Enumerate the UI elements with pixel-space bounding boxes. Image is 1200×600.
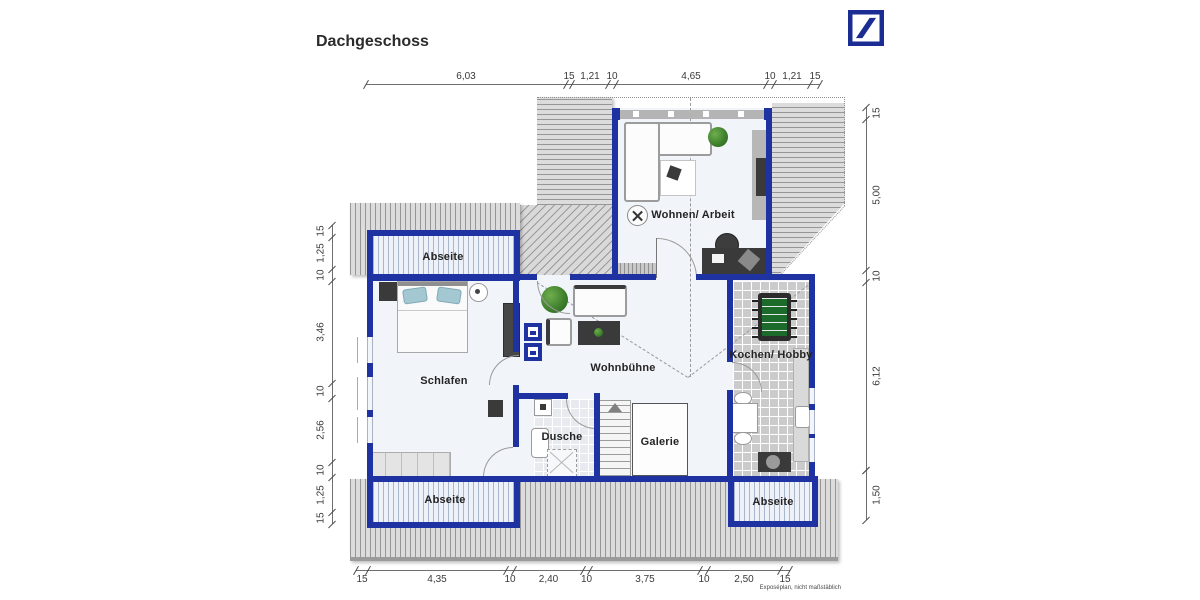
- dim-label: 3,75: [635, 574, 654, 585]
- dim-label: 6,12: [872, 366, 883, 385]
- dim-line: [366, 84, 820, 85]
- dim-label: 15: [872, 107, 883, 118]
- dim-label: 5,00: [872, 185, 883, 204]
- dim-label: 15: [563, 71, 574, 82]
- dim-label: 1,25: [316, 485, 327, 504]
- dim-label: 15: [356, 574, 367, 585]
- dim-line: [866, 107, 867, 470]
- dim-label: 1,25: [316, 243, 327, 262]
- dim-label: 3,46: [316, 322, 327, 341]
- dim-label: 10: [764, 71, 775, 82]
- dim-label: 10: [316, 269, 327, 280]
- dim-line: [866, 470, 867, 520]
- dim-label: 1,21: [580, 71, 599, 82]
- dim-label: 2,56: [316, 420, 327, 439]
- dim-label: 6,03: [456, 71, 475, 82]
- dim-label: 10: [504, 574, 515, 585]
- dim-label: 4,35: [427, 574, 446, 585]
- floor-plan-page: Dachgeschoss: [0, 0, 1200, 600]
- dim-label: 4,65: [681, 71, 700, 82]
- dim-label: 15: [316, 225, 327, 236]
- dim-label: 2,40: [539, 574, 558, 585]
- dim-label: 10: [698, 574, 709, 585]
- dim-label: 10: [316, 464, 327, 475]
- dim-label: 1,21: [782, 71, 801, 82]
- dim-label: 10: [606, 71, 617, 82]
- footnote: Exposéplan, nicht maßstäblich: [760, 585, 841, 591]
- dim-label: 15: [779, 574, 790, 585]
- dim-label: 15: [809, 71, 820, 82]
- dimension-chains: 6,03151,21104,65101,2115154,35102,40103,…: [0, 0, 1200, 600]
- dim-label: 2,50: [734, 574, 753, 585]
- dim-label: 10: [316, 385, 327, 396]
- dim-label: 15: [316, 512, 327, 523]
- dim-label: 1,50: [872, 485, 883, 504]
- dim-label: 10: [581, 574, 592, 585]
- dim-line: [356, 570, 790, 571]
- dim-label: 10: [872, 270, 883, 281]
